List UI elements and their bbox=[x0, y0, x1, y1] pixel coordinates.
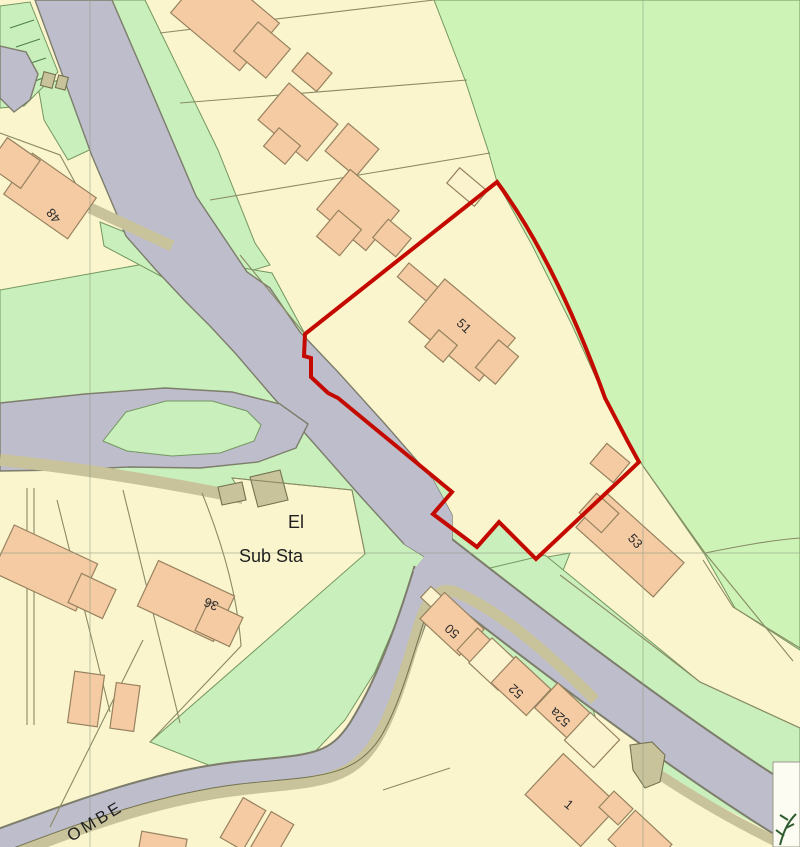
legend-corner bbox=[773, 762, 800, 847]
label-substation-line2: Sub Sta bbox=[239, 546, 304, 566]
os-style-map: 48 51 53 36 50 52 52a 1 El Sub Sta OMBE bbox=[0, 0, 800, 847]
map-canvas: 48 51 53 36 50 52 52a 1 El Sub Sta OMBE bbox=[0, 0, 800, 847]
legend-panel bbox=[773, 762, 800, 847]
label-substation-line1: El bbox=[288, 512, 304, 532]
building-left-pair-1 bbox=[68, 671, 105, 727]
